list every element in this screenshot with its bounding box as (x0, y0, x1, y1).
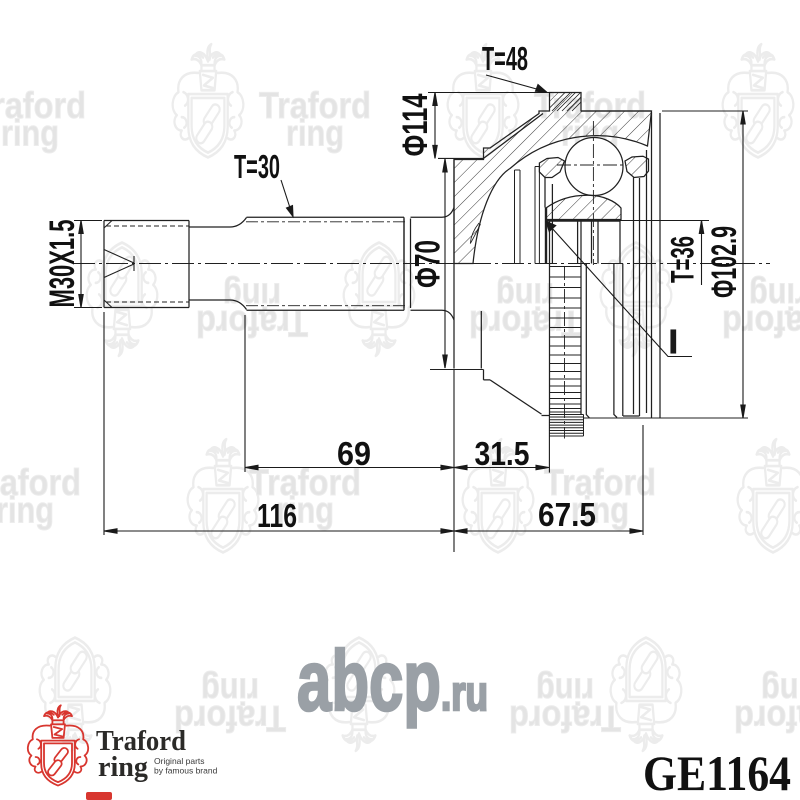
svg-text:Ф102.9: Ф102.9 (705, 226, 744, 298)
svg-text:31.5: 31.5 (475, 435, 530, 472)
svg-text:ring: ring (98, 752, 148, 783)
svg-text:M30X1.5: M30X1.5 (43, 220, 82, 308)
svg-text:67.5: 67.5 (538, 496, 596, 533)
svg-text:by famous brand: by famous brand (154, 766, 218, 776)
svg-text:GE1164: GE1164 (643, 745, 791, 800)
svg-text:abcp: abcp (297, 634, 441, 729)
svg-text:116: 116 (257, 497, 297, 534)
svg-text:.ru: .ru (441, 667, 488, 721)
svg-text:Ф114: Ф114 (396, 93, 435, 156)
svg-text:T=48: T=48 (482, 40, 528, 77)
svg-text:Original parts: Original parts (154, 756, 205, 766)
svg-text:T=30: T=30 (234, 148, 280, 185)
svg-text:T=36: T=36 (665, 236, 701, 283)
svg-text:Ф70: Ф70 (409, 240, 448, 288)
svg-text:69: 69 (337, 435, 371, 472)
